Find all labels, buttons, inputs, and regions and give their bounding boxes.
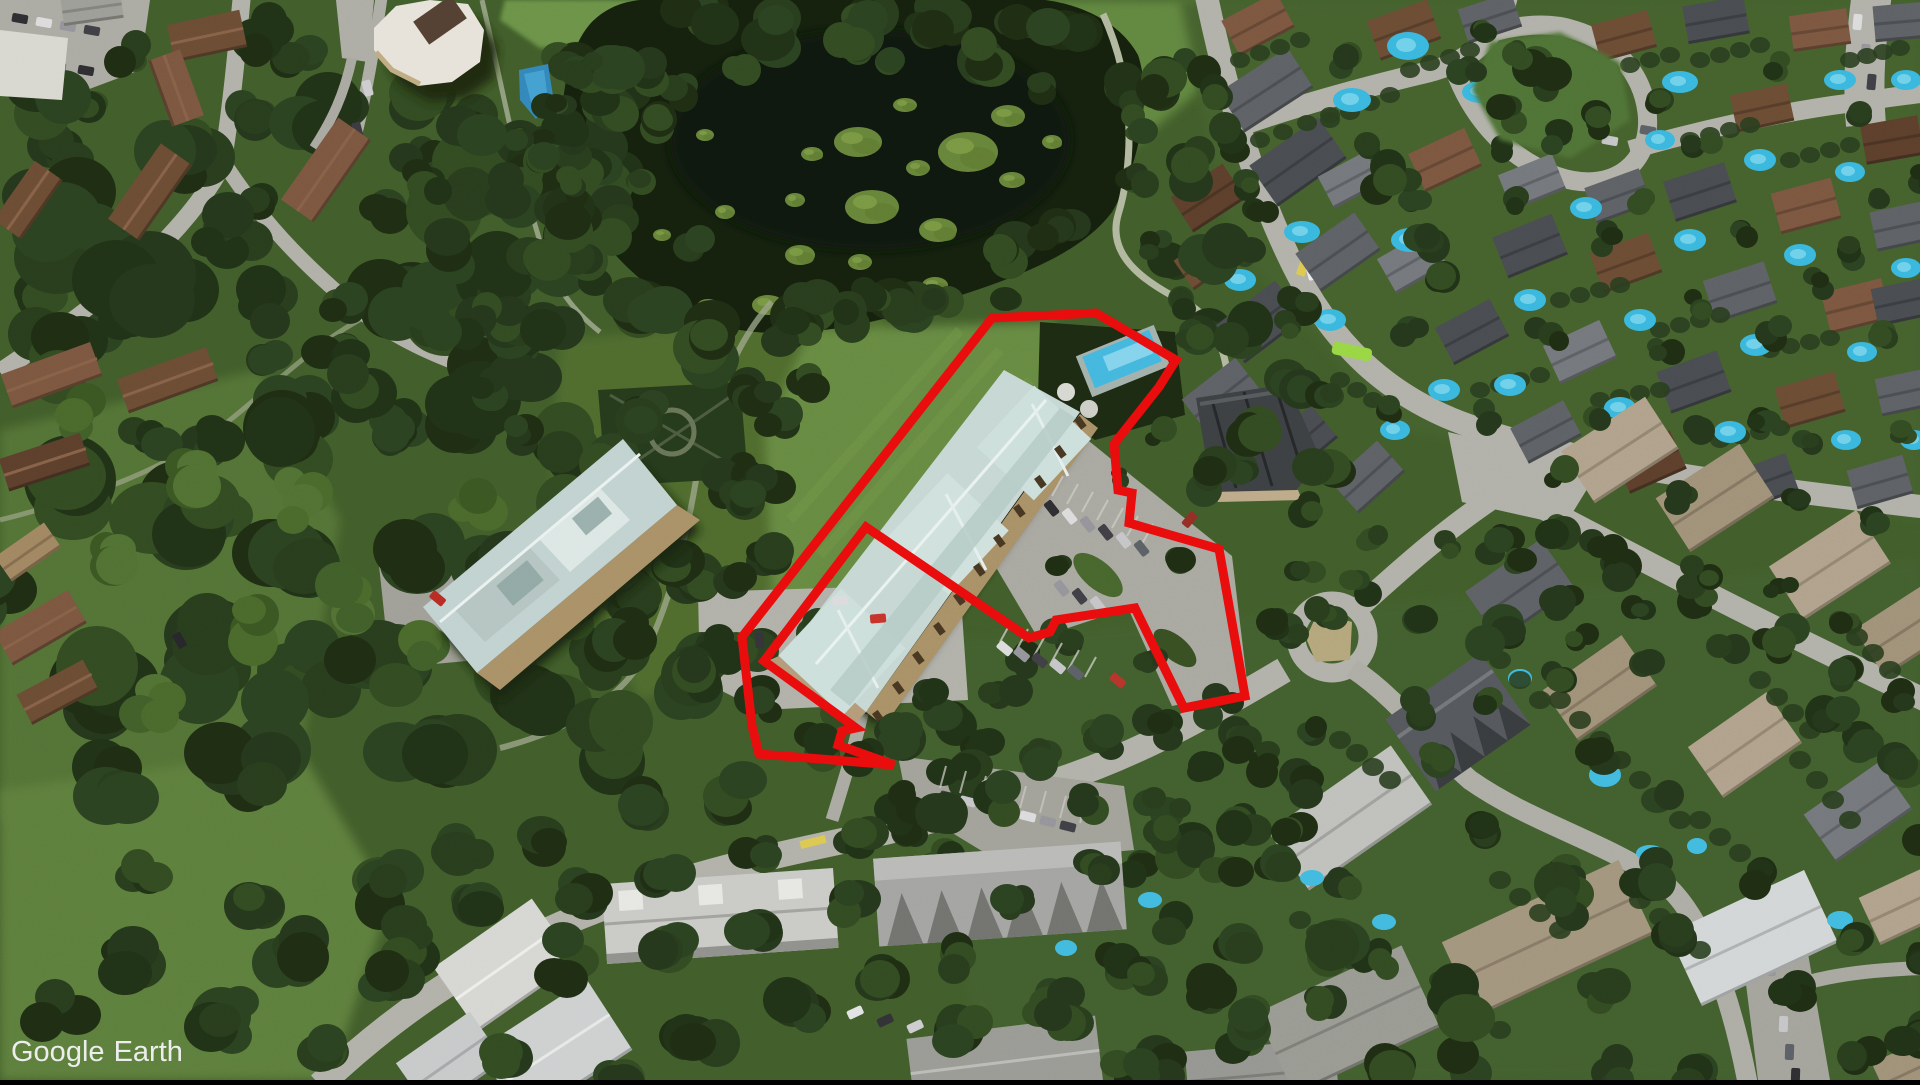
svg-text:Google Earth: Google Earth (11, 1036, 183, 1068)
